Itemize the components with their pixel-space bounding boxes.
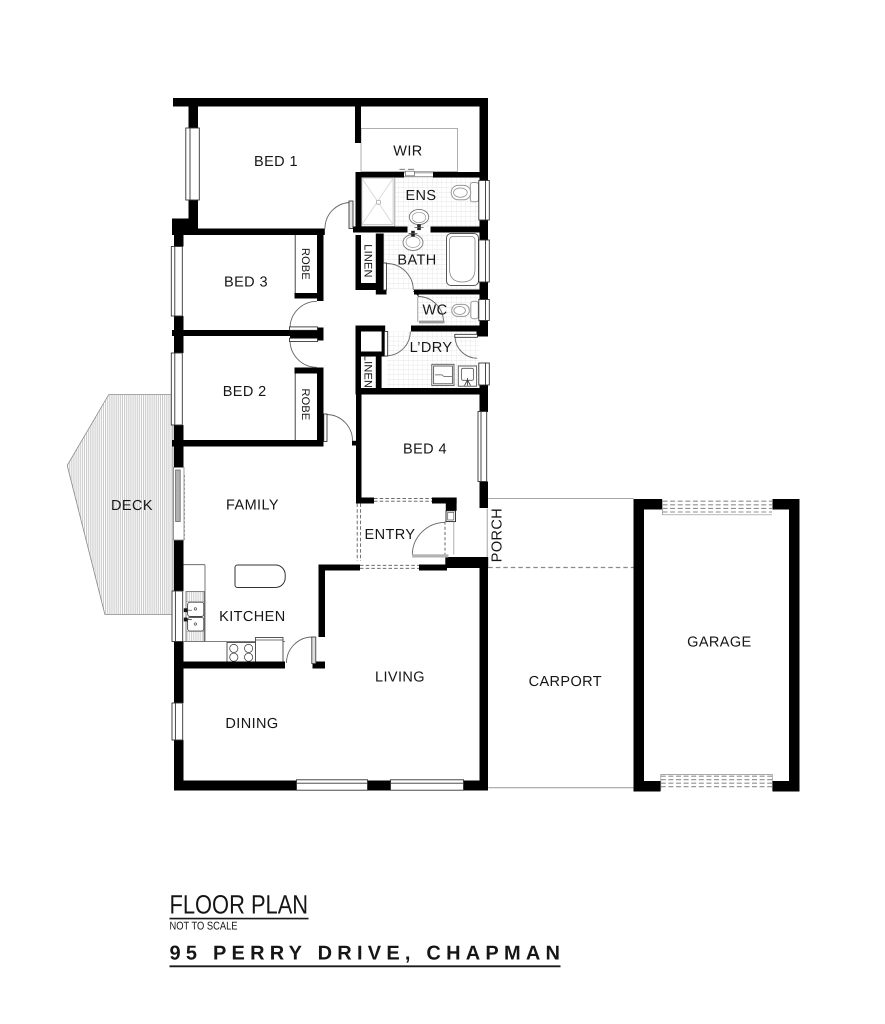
svg-text:BATH: BATH [397,253,436,269]
svg-text:KITCHEN: KITCHEN [219,609,285,625]
svg-text:ENS: ENS [405,188,436,204]
svg-text:BED 3: BED 3 [224,275,268,291]
svg-text:FLOOR PLAN: FLOOR PLAN [170,889,309,919]
svg-text:LINEN: LINEN [362,355,374,388]
svg-text:FAMILY: FAMILY [226,498,279,514]
svg-text:WIR: WIR [393,144,422,160]
svg-text:ROBE: ROBE [299,248,311,280]
svg-text:WC: WC [423,303,448,319]
svg-text:BED 1: BED 1 [254,154,298,170]
svg-text:ROBE: ROBE [299,389,311,421]
svg-text:BED 2: BED 2 [223,384,267,400]
svg-text:L’DRY: L’DRY [410,340,453,356]
svg-text:BED 4: BED 4 [403,442,447,458]
svg-text:PORCH: PORCH [490,508,506,562]
svg-text:NOT TO SCALE: NOT TO SCALE [170,921,238,933]
svg-text:LIVING: LIVING [375,670,425,686]
svg-text:CARPORT: CARPORT [529,674,602,690]
svg-text:GARAGE: GARAGE [687,634,751,650]
svg-text:ENTRY: ENTRY [365,527,416,543]
svg-text:LINEN: LINEN [362,244,374,277]
svg-text:DINING: DINING [225,716,278,732]
svg-text:DECK: DECK [111,498,153,514]
